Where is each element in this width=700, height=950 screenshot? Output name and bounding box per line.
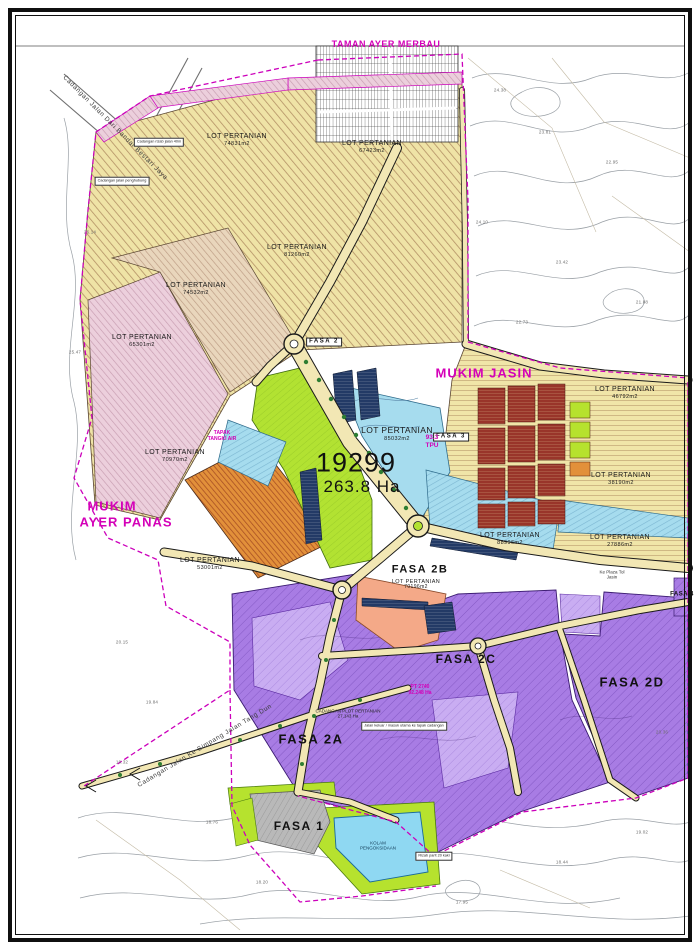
label-fasa-2a: FASA 2A	[279, 733, 344, 748]
spot-elevation: 23.42	[556, 259, 568, 264]
spot-elevation: 24.10	[476, 219, 488, 224]
spot-elevation: 18.20	[256, 879, 268, 884]
label-lot-6: LOT PERTANIAN53001m2	[180, 557, 240, 571]
note-box-3: Jalan keluar / masuk utama ke tapak cada…	[361, 722, 447, 731]
zone-housing-estate	[316, 46, 458, 142]
label-fasa-2: FASA 2	[306, 338, 342, 347]
label-lot-9: LOT PERTANIAN46792m2	[595, 386, 655, 400]
spot-elevation: 25.47	[69, 349, 81, 354]
label-lot-12: LOT PERTANIAN70196m2	[392, 579, 440, 591]
label-fasa-2c: FASA 2C	[436, 653, 497, 667]
label-main-lot-number: 19299	[316, 447, 396, 478]
note-box-4: Rizab parit 20 kaki	[415, 852, 452, 861]
label-lot-3: LOT PERTANIAN74532m2	[166, 282, 226, 296]
spot-elevation: 20.36	[656, 729, 668, 734]
site-plan-sheet: TAMAN AYER MERBAU MUKIM JASIN MUKIM AYER…	[0, 0, 700, 950]
label-fasa-2b: FASA 2B	[392, 564, 449, 577]
spot-elevation: 24.38	[494, 87, 506, 92]
spot-elevation: 19.84	[146, 699, 158, 704]
label-fasa-1: FASA 1	[274, 820, 325, 834]
label-water-tank-site: TAPAK TANGKI AIR	[208, 430, 237, 442]
spot-elevation: 18.44	[556, 859, 568, 864]
label-taman-ayer-merbau: TAMAN AYER MERBAU	[332, 39, 441, 49]
label-lot-1: LOT PERTANIAN67423m2	[342, 140, 402, 154]
label-cadangan-plot: CADANGAN PLOT PERTANIAN 27.143 Ha	[315, 709, 380, 720]
label-fasa-2d: FASA 2D	[600, 676, 665, 691]
spot-elevation: 18.76	[206, 819, 218, 824]
spot-elevation: 19.32	[116, 759, 128, 764]
spot-elevation: 21.88	[636, 299, 648, 304]
label-lot-5: LOT PERTANIAN70970m2	[145, 449, 205, 463]
label-mukim-jasin: MUKIM JASIN	[436, 367, 533, 382]
label-toll-direction: Ke Plaza Tol Jasin	[600, 570, 625, 581]
label-tpu: 93.3 TPU	[426, 434, 439, 450]
label-lot-11: LOT PERTANIAN27886m2	[590, 534, 650, 548]
label-mukim-ayer-panas-1: MUKIM	[87, 500, 136, 515]
label-lot-7: LOT PERTANIAN85032m2	[361, 426, 433, 442]
label-lot-10: LOT PERTANIAN38190m2	[591, 472, 651, 486]
label-lot-4: LOT PERTANIAN65301m2	[112, 334, 172, 348]
spot-elevation: 17.95	[456, 899, 468, 904]
label-lot-2: LOT PERTANIAN81260m2	[267, 244, 327, 258]
spot-elevation: 22.95	[606, 159, 618, 164]
label-fasa-4: FASA 4	[670, 592, 694, 599]
note-box-2: Cadangan jalan penghubung	[95, 177, 150, 186]
spot-elevation: 20.15	[116, 639, 128, 644]
label-main-lot-area: 263.8 Ha	[324, 477, 401, 497]
note-box-1: Cadangan rizab jalan 40m	[134, 138, 184, 147]
spot-elevation: 22.73	[516, 319, 528, 324]
label-lot-0: LOT PERTANIAN74831m2	[207, 133, 267, 147]
spot-elevation: 26.14	[84, 229, 96, 234]
label-pt-area: PT 2740 92.248 Ha	[408, 684, 431, 696]
label-pond: KOLAM PENGOKSIDAAN	[360, 841, 396, 852]
label-lot-8: LOT PERTANIAN88996m2	[480, 532, 540, 546]
spot-elevation: 19.02	[636, 829, 648, 834]
spot-elevation: 23.81	[539, 129, 551, 134]
label-mukim-ayer-panas-2: AYER PANAS	[79, 516, 172, 531]
